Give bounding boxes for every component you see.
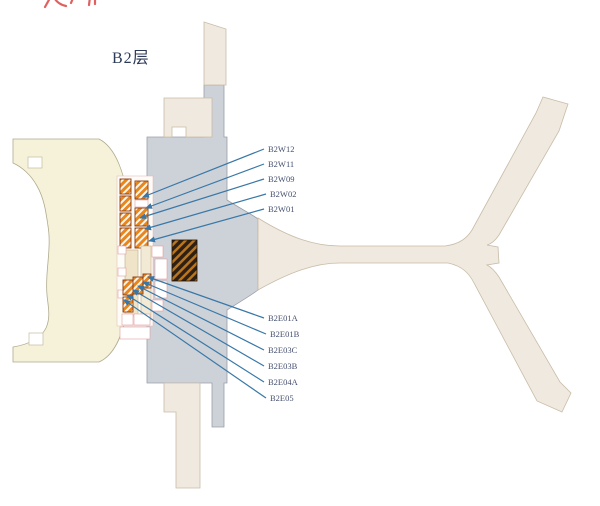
red-pen-annotation-clipped [45, 0, 95, 7]
floorplan-stage: B2W12B2W11B2W09B2W02B2W01B2E01AB2E01BB2E… [0, 0, 600, 506]
callout-label-b2e01b: B2E01B [270, 329, 300, 339]
callout-label-b2w09: B2W09 [268, 174, 294, 184]
north-annex-block [164, 98, 212, 137]
callout-label-b2e04a: B2E04A [268, 377, 299, 387]
west-gate-white-room [135, 200, 148, 207]
callout-label-b2e05: B2E05 [270, 393, 294, 403]
callout-label-b2w12: B2W12 [268, 144, 294, 154]
callout-label-b2e03c: B2E03C [268, 345, 298, 355]
east-gate-white-rooms [120, 314, 150, 339]
callout-label-b2w01: B2W01 [268, 204, 294, 214]
callout-label-b2w02: B2W02 [270, 189, 296, 199]
west-concourse-notch-top [28, 157, 42, 168]
b2-floorplan-svg: B2W12B2W11B2W09B2W02B2W01B2E01AB2E01BB2E… [0, 0, 600, 501]
floor-title: B2层 [112, 44, 150, 68]
west-concourse-region [13, 139, 132, 362]
east-apron-region [258, 97, 571, 412]
south-annex-block [164, 383, 200, 488]
callout-label-b2e03b: B2E03B [268, 361, 298, 371]
callout-label-b2w11: B2W11 [268, 159, 294, 169]
dark-service-room [172, 240, 197, 281]
north-pier-strip [204, 22, 226, 85]
west-concourse-notch-bottom [29, 333, 43, 345]
callout-label-b2e01a: B2E01A [268, 313, 299, 323]
